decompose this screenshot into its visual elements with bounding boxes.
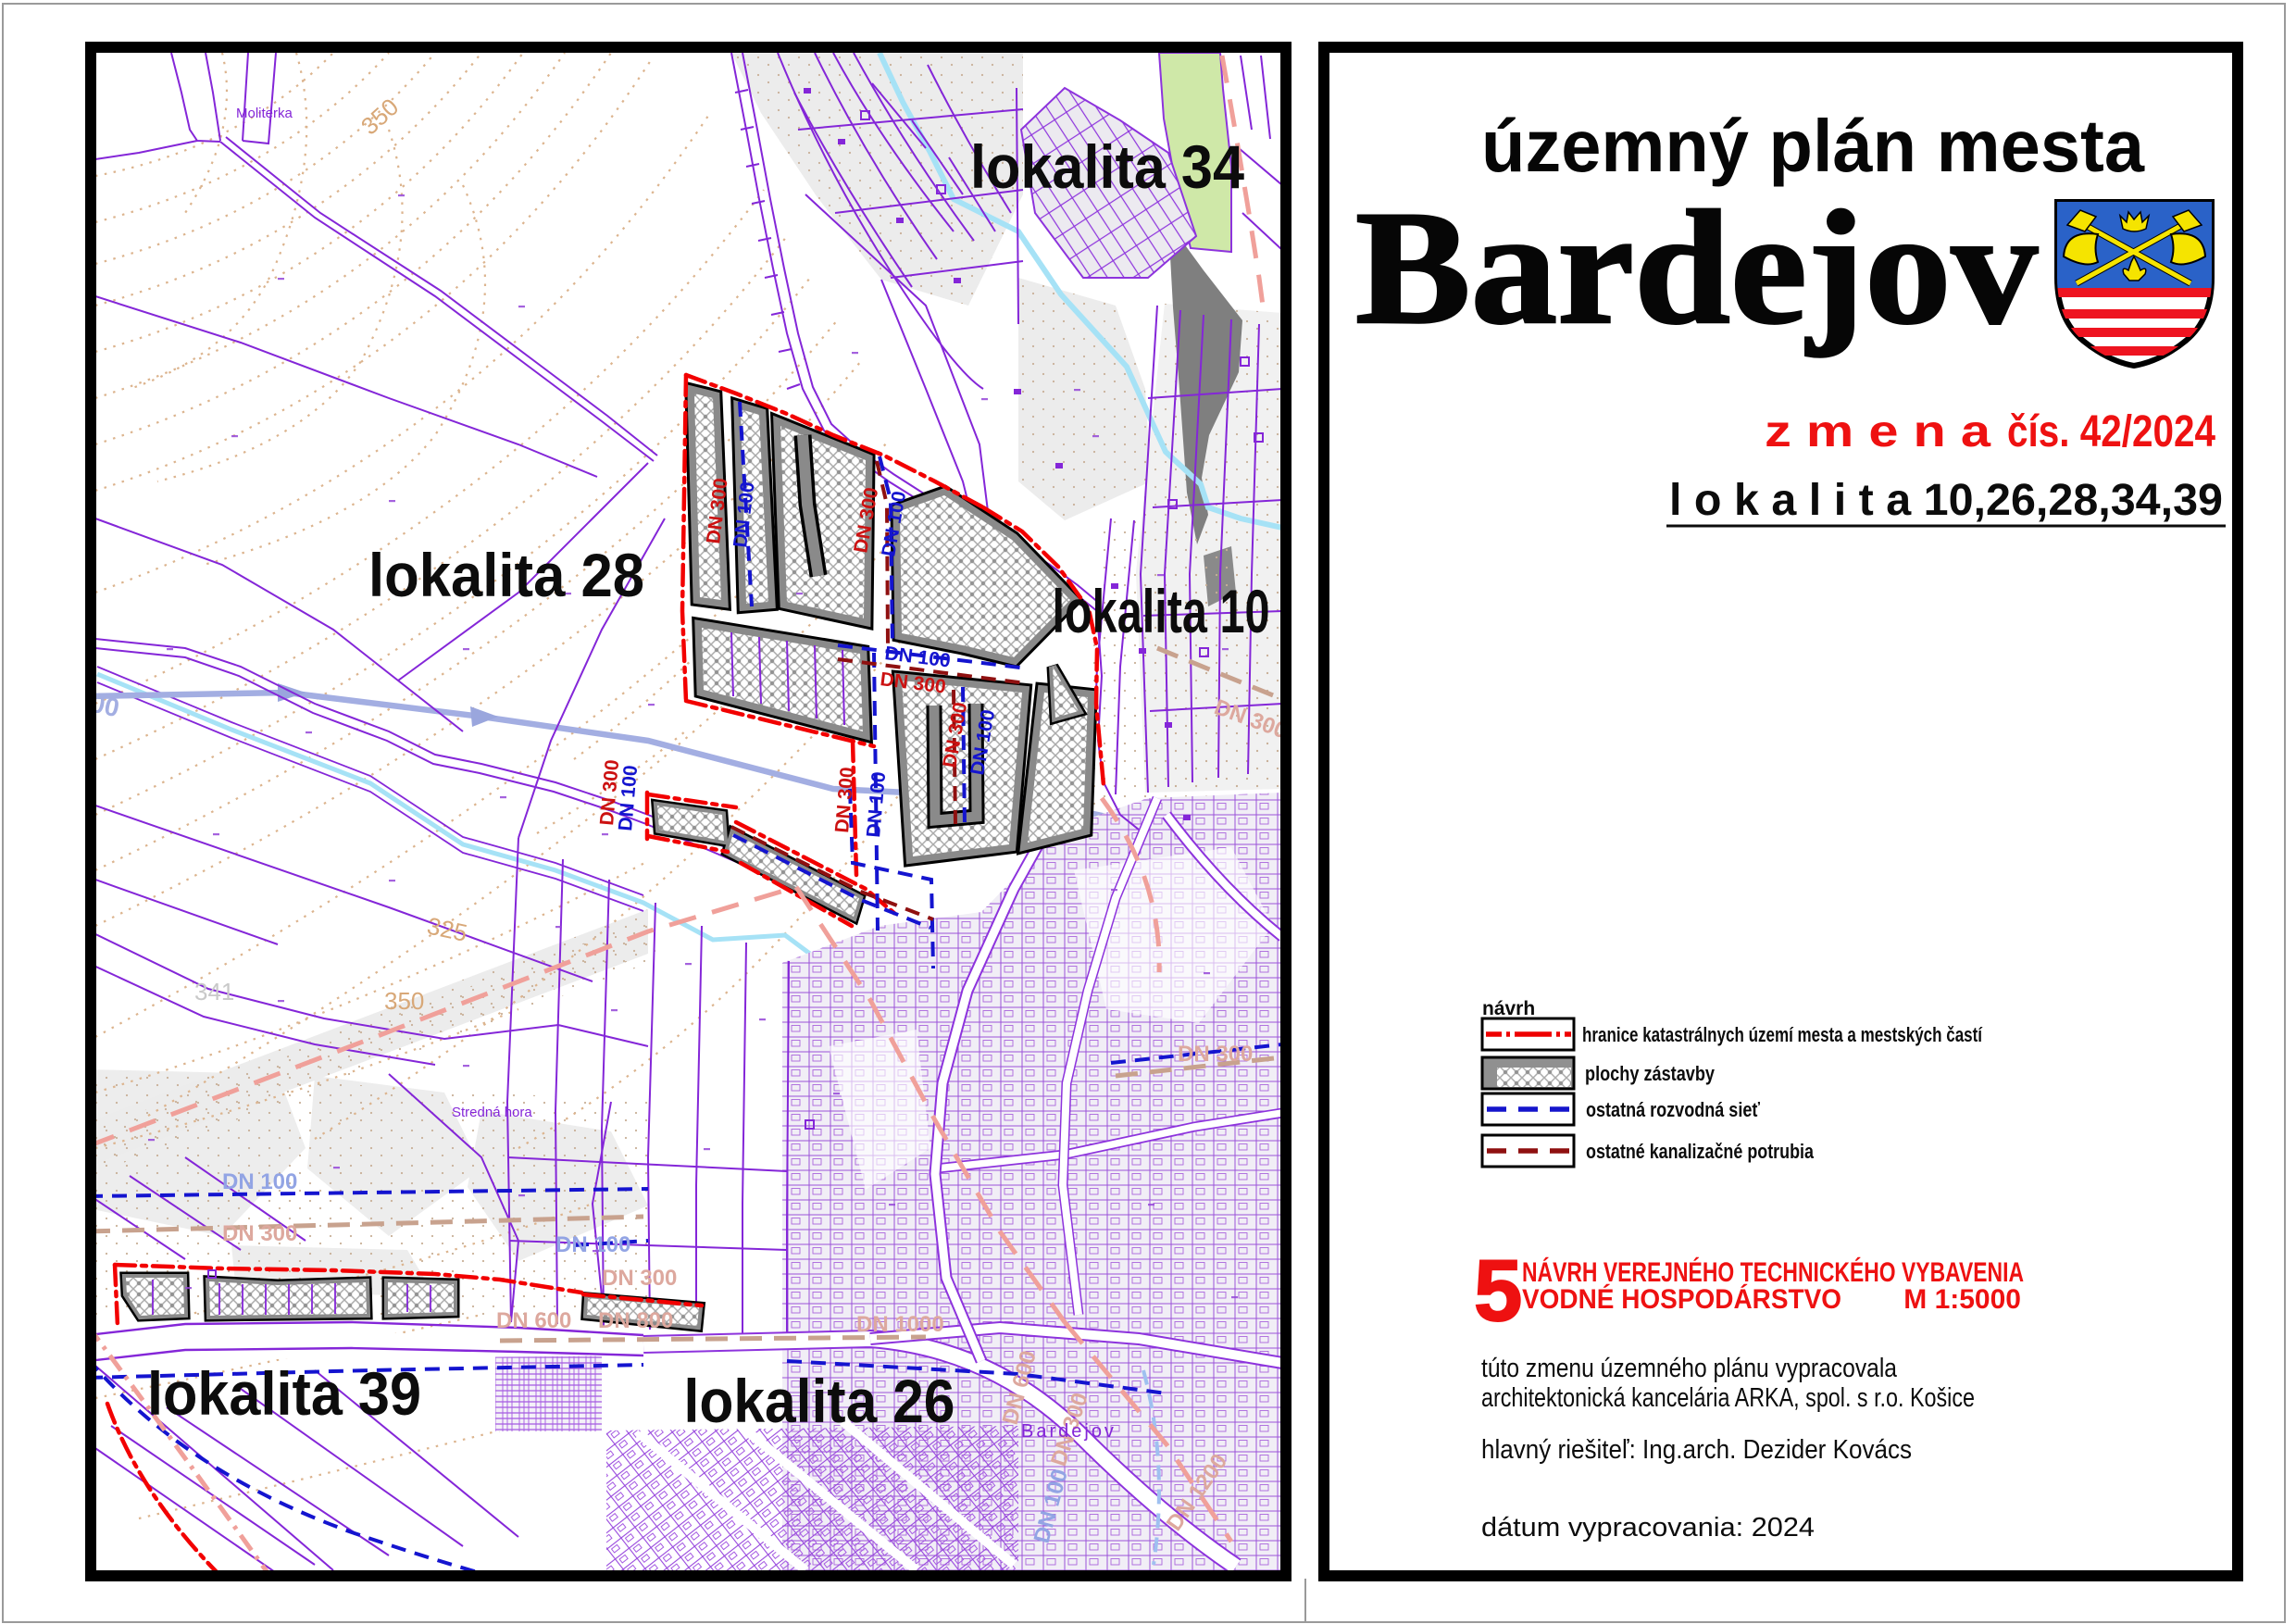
svg-text:dátum vypracovania: 2024: dátum vypracovania: 2024	[1481, 1513, 1815, 1543]
svg-text:lokalita 39: lokalita 39	[147, 1359, 421, 1428]
svg-text:architektonická kancelária ARK: architektonická kancelária ARKA, spol. s…	[1481, 1383, 1975, 1413]
svg-text:DN 1000: DN 1000	[856, 1312, 944, 1337]
svg-text:DN 100: DN 100	[555, 1232, 630, 1257]
svg-text:Bardejov: Bardejov	[1021, 1421, 1117, 1442]
svg-text:DN 300: DN 300	[602, 1266, 677, 1291]
svg-text:5: 5	[1474, 1242, 1522, 1339]
svg-text:ostatná rozvodná sieť: ostatná rozvodná sieť	[1586, 1098, 1760, 1121]
svg-text:návrh: návrh	[1482, 998, 1535, 1019]
svg-text:Stredná hora: Stredná hora	[452, 1105, 532, 1120]
svg-text:VODNÉ HOSPODÁRSTVO: VODNÉ HOSPODÁRSTVO	[1522, 1283, 1841, 1315]
svg-text:lokalita 28: lokalita 28	[368, 541, 644, 609]
svg-text:lokalita 34: lokalita 34	[970, 132, 1244, 201]
svg-text:Moliterka: Moliterka	[236, 106, 293, 121]
svg-text:lokalita 10: lokalita 10	[1053, 577, 1270, 645]
svg-text:územný plán mesta: územný plán mesta	[1481, 105, 2144, 187]
svg-text:NÁVRH VEREJNÉHO TECHNICKÉHO V: NÁVRH VEREJNÉHO TECHNICKÉHO VYBAVENIA	[1522, 1256, 2024, 1288]
svg-text:z m e n a: z m e n a	[1765, 407, 1990, 456]
svg-text:čís. 42/2024: čís. 42/2024	[2007, 407, 2215, 456]
svg-text:hranice katastrálnych území me: hranice katastrálnych území mesta a mest…	[1582, 1023, 1983, 1046]
svg-text:hlavný riešiteľ: Ing.arch. Dez: hlavný riešiteľ: Ing.arch. Dezider Kovác…	[1481, 1435, 1912, 1465]
svg-text:350: 350	[384, 987, 424, 1015]
svg-text:DN 300: DN 300	[1178, 1042, 1253, 1067]
svg-text:lokalita 26: lokalita 26	[684, 1367, 955, 1435]
svg-text:DN 600: DN 600	[496, 1308, 571, 1333]
svg-text:DN 800: DN 800	[598, 1308, 673, 1333]
svg-text:341: 341	[194, 978, 234, 1006]
svg-text:DN 100: DN 100	[222, 1169, 297, 1194]
svg-text:túto zmenu územného plánu vypr: túto zmenu územného plánu vypracovala	[1481, 1354, 1898, 1383]
svg-text:l o k a l i t a 10,26,28,34,3: l o k a l i t a 10,26,28,34,39	[1669, 476, 2223, 525]
svg-text:plochy zástavby: plochy zástavby	[1585, 1062, 1716, 1085]
svg-text:DN 300: DN 300	[222, 1221, 297, 1246]
svg-text:ostatné kanalizačné potrubia: ostatné kanalizačné potrubia	[1586, 1140, 1815, 1163]
svg-text:M 1:5000: M 1:5000	[1903, 1284, 2021, 1315]
svg-text:Bardejov: Bardejov	[1355, 178, 2038, 358]
